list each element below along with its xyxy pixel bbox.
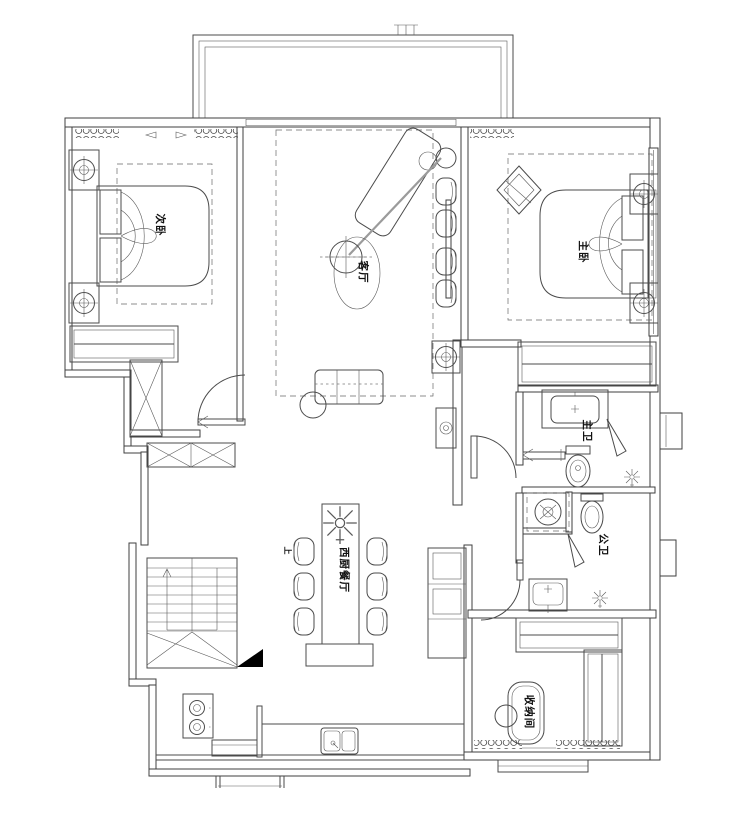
stairs-break-line: [147, 632, 237, 667]
counter-partition: [257, 706, 262, 757]
storage-room: 收纳间: [495, 618, 622, 746]
toilet: [581, 494, 603, 533]
room-label: 西厨餐厅: [338, 547, 351, 593]
guest-bathroom: 公卫: [481, 493, 609, 620]
window-coil: [75, 129, 119, 138]
pillow: [100, 190, 121, 234]
room-label: 公卫: [597, 534, 609, 557]
closet-right: [584, 650, 622, 746]
stairs-solid-triangle: [237, 649, 263, 667]
room-label: 客厅: [357, 260, 370, 284]
master-bathroom: 主卫: [523, 390, 640, 487]
island-cabinet: [306, 644, 373, 666]
living-room: 客厅: [276, 125, 460, 448]
bed: [540, 190, 656, 298]
suite-entry-door: [471, 436, 516, 478]
cabinet-x: [130, 360, 162, 436]
washing-machine: [527, 493, 569, 531]
cabinet-xx: [147, 443, 235, 467]
kitchen: [156, 694, 464, 760]
pillow: [622, 196, 643, 240]
sofa: [315, 370, 383, 404]
window-coil: [470, 129, 514, 138]
floor-plan-canvas: 次卧: [0, 0, 740, 840]
stairs-up-label: 上: [283, 547, 293, 556]
room-label: 收纳间: [523, 695, 536, 730]
base-cabinet: [212, 740, 257, 756]
storage-sill: [498, 760, 588, 772]
kitchen-entry-sill: [216, 776, 284, 788]
tall-cabinet: [428, 548, 466, 658]
table-plant: [323, 506, 357, 544]
pipe-shaft: [660, 413, 682, 449]
toilet: [566, 446, 590, 487]
wall-art-frame: [497, 166, 541, 214]
tv-unit: [352, 125, 444, 239]
closet-top: [516, 618, 622, 652]
window-arrows: [146, 132, 186, 138]
dining-area: 西厨餐厅: [294, 504, 466, 666]
pillow: [622, 250, 643, 294]
shower-glass: [568, 534, 584, 567]
bed: [97, 186, 209, 286]
projection-line: [349, 158, 441, 255]
wardrobe: [518, 342, 656, 386]
pillow: [100, 238, 121, 282]
balcony: [193, 25, 513, 121]
shower-glass: [607, 419, 626, 456]
living-screen-wall: [446, 200, 451, 298]
room-label: 主卧: [577, 241, 590, 264]
secondary-bedroom: 次卧: [69, 150, 245, 467]
stove: [183, 694, 213, 738]
floor-drain-icon: [592, 590, 608, 608]
pendant-light: [320, 236, 380, 309]
countertop: [156, 724, 464, 760]
sliding-door: [523, 449, 565, 461]
ceiling-outline: [276, 130, 433, 396]
master-bedroom: 主卧: [497, 154, 658, 386]
side-lamp: [436, 148, 456, 168]
stairs: 上: [147, 547, 293, 669]
ac-ceiling-unit: [69, 283, 99, 323]
stool: [495, 705, 517, 727]
window-coil: [194, 129, 238, 138]
pipe-shaft-2: [660, 540, 676, 576]
window-coil: [474, 740, 522, 749]
balcony-door-sill: [246, 119, 456, 126]
ac-ceiling-unit: [69, 150, 99, 190]
room-label: 次卧: [154, 214, 167, 237]
vanity-sink: [542, 390, 608, 428]
floor-plan-drawing: 次卧: [0, 0, 740, 840]
balcony-vent-ticks: [394, 25, 418, 35]
room-label: 主卫: [581, 420, 594, 443]
kitchen-sink: [321, 728, 358, 754]
floor-drain-icon: [624, 469, 640, 487]
washbasin: [529, 579, 567, 613]
wardrobe: [70, 326, 178, 362]
